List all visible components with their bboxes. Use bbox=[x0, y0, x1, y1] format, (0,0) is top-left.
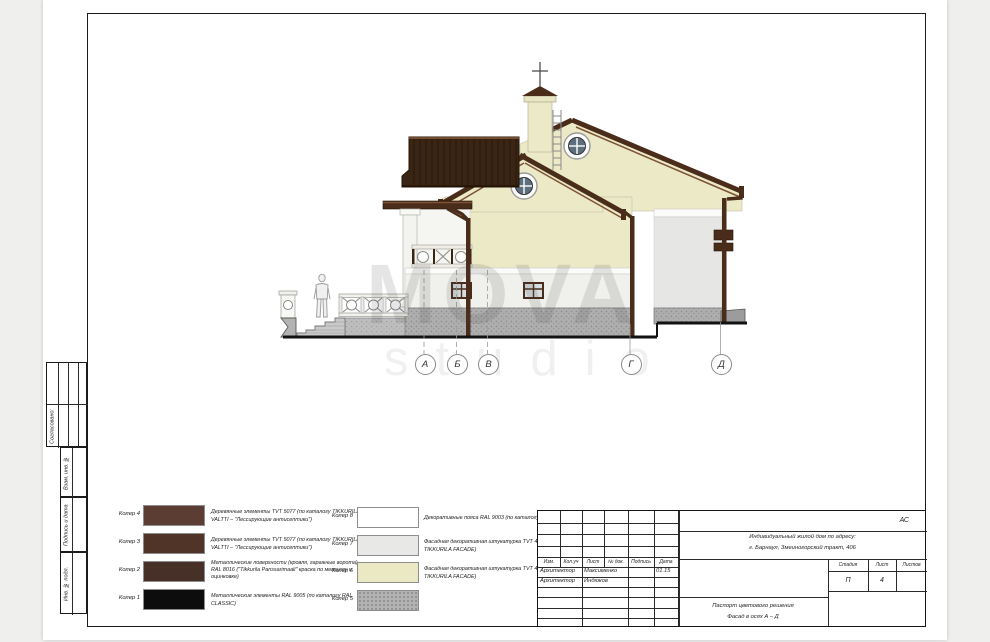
color-swatch bbox=[357, 535, 419, 556]
terrace-railing bbox=[339, 294, 408, 317]
divider bbox=[538, 546, 678, 547]
right-wing bbox=[654, 209, 733, 308]
first-floor bbox=[405, 268, 633, 308]
divider bbox=[538, 618, 678, 619]
row-surname: Максименко bbox=[584, 567, 628, 577]
color-swatch bbox=[357, 562, 419, 583]
divider bbox=[828, 591, 927, 592]
doc-title-line2: Фасад в осях А – Д bbox=[678, 612, 828, 624]
stage-header: Стадия bbox=[828, 559, 868, 571]
legend-label: Колер 4 bbox=[100, 511, 140, 517]
row-role: Архитектор bbox=[540, 567, 582, 577]
project-name-line2: г. Барнаул, Змеиногорский тракт, 406 bbox=[678, 542, 927, 556]
col-podpis: Подпись bbox=[628, 557, 654, 567]
color-swatch bbox=[143, 589, 205, 610]
axis-marker-a: А bbox=[415, 354, 436, 375]
color-swatch bbox=[357, 507, 419, 528]
legend-label: Колер 3 bbox=[100, 539, 140, 545]
legend-label: Колер 2 bbox=[100, 567, 140, 573]
round-window-rear bbox=[564, 133, 590, 159]
row-surname: Индюков bbox=[584, 577, 628, 587]
axis-marker-v: В bbox=[478, 354, 499, 375]
row-role: Архитектор bbox=[540, 577, 582, 587]
legend-label: Колер 5 bbox=[313, 596, 353, 602]
basement-window bbox=[524, 283, 543, 298]
divider bbox=[538, 534, 678, 535]
sheetno-value: 4 bbox=[868, 571, 896, 591]
divider bbox=[538, 608, 678, 609]
left-plank-roof bbox=[402, 137, 519, 187]
col-dok: № док. bbox=[604, 557, 628, 567]
sheets-header: Листов bbox=[896, 559, 927, 571]
legend-label: Колер 8 bbox=[313, 513, 353, 519]
divider bbox=[538, 523, 678, 524]
col-izm: Изм. bbox=[538, 557, 560, 567]
row-date: 01.15 bbox=[656, 567, 678, 577]
color-swatch-textured bbox=[357, 590, 419, 611]
color-swatch bbox=[143, 561, 205, 582]
axis-marker-d: Д bbox=[711, 354, 732, 375]
axis-marker-g: Г bbox=[621, 354, 642, 375]
axis-marker-b: Б bbox=[447, 354, 468, 375]
stage-value: П bbox=[828, 571, 868, 591]
legend-label: Колер 7 bbox=[313, 541, 353, 547]
left-pier bbox=[279, 291, 297, 337]
col-data: Дата bbox=[654, 557, 678, 567]
divider bbox=[538, 597, 678, 598]
sheetno-header: Лист bbox=[868, 559, 896, 571]
drawing-canvas: Согласовано: Взам. инв. № Подпись и дата… bbox=[0, 0, 990, 642]
color-swatch bbox=[143, 505, 205, 526]
sheets-value bbox=[896, 571, 927, 591]
title-block: Изм. Кол.уч Лист № док. Подпись Дата Арх… bbox=[537, 510, 926, 627]
col-list: Лист bbox=[582, 557, 604, 567]
divider bbox=[678, 597, 828, 598]
row-date bbox=[656, 577, 678, 587]
color-swatch bbox=[143, 533, 205, 554]
legend-label: Колер 1 bbox=[100, 595, 140, 601]
sheet-code: АС bbox=[678, 511, 918, 531]
divider bbox=[538, 587, 678, 588]
col-koluch: Кол.уч bbox=[560, 557, 582, 567]
legend-label: Колер 6 bbox=[313, 568, 353, 574]
human-figure bbox=[314, 274, 330, 317]
terrace-and-steps bbox=[297, 318, 405, 337]
